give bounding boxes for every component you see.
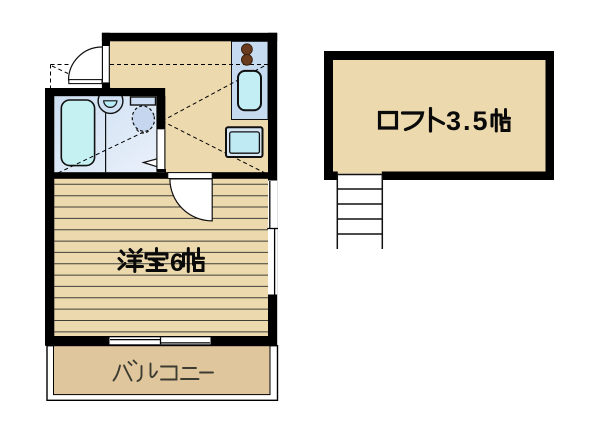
svg-text:3.5: 3.5 xyxy=(446,106,490,136)
svg-text:6: 6 xyxy=(170,249,184,277)
